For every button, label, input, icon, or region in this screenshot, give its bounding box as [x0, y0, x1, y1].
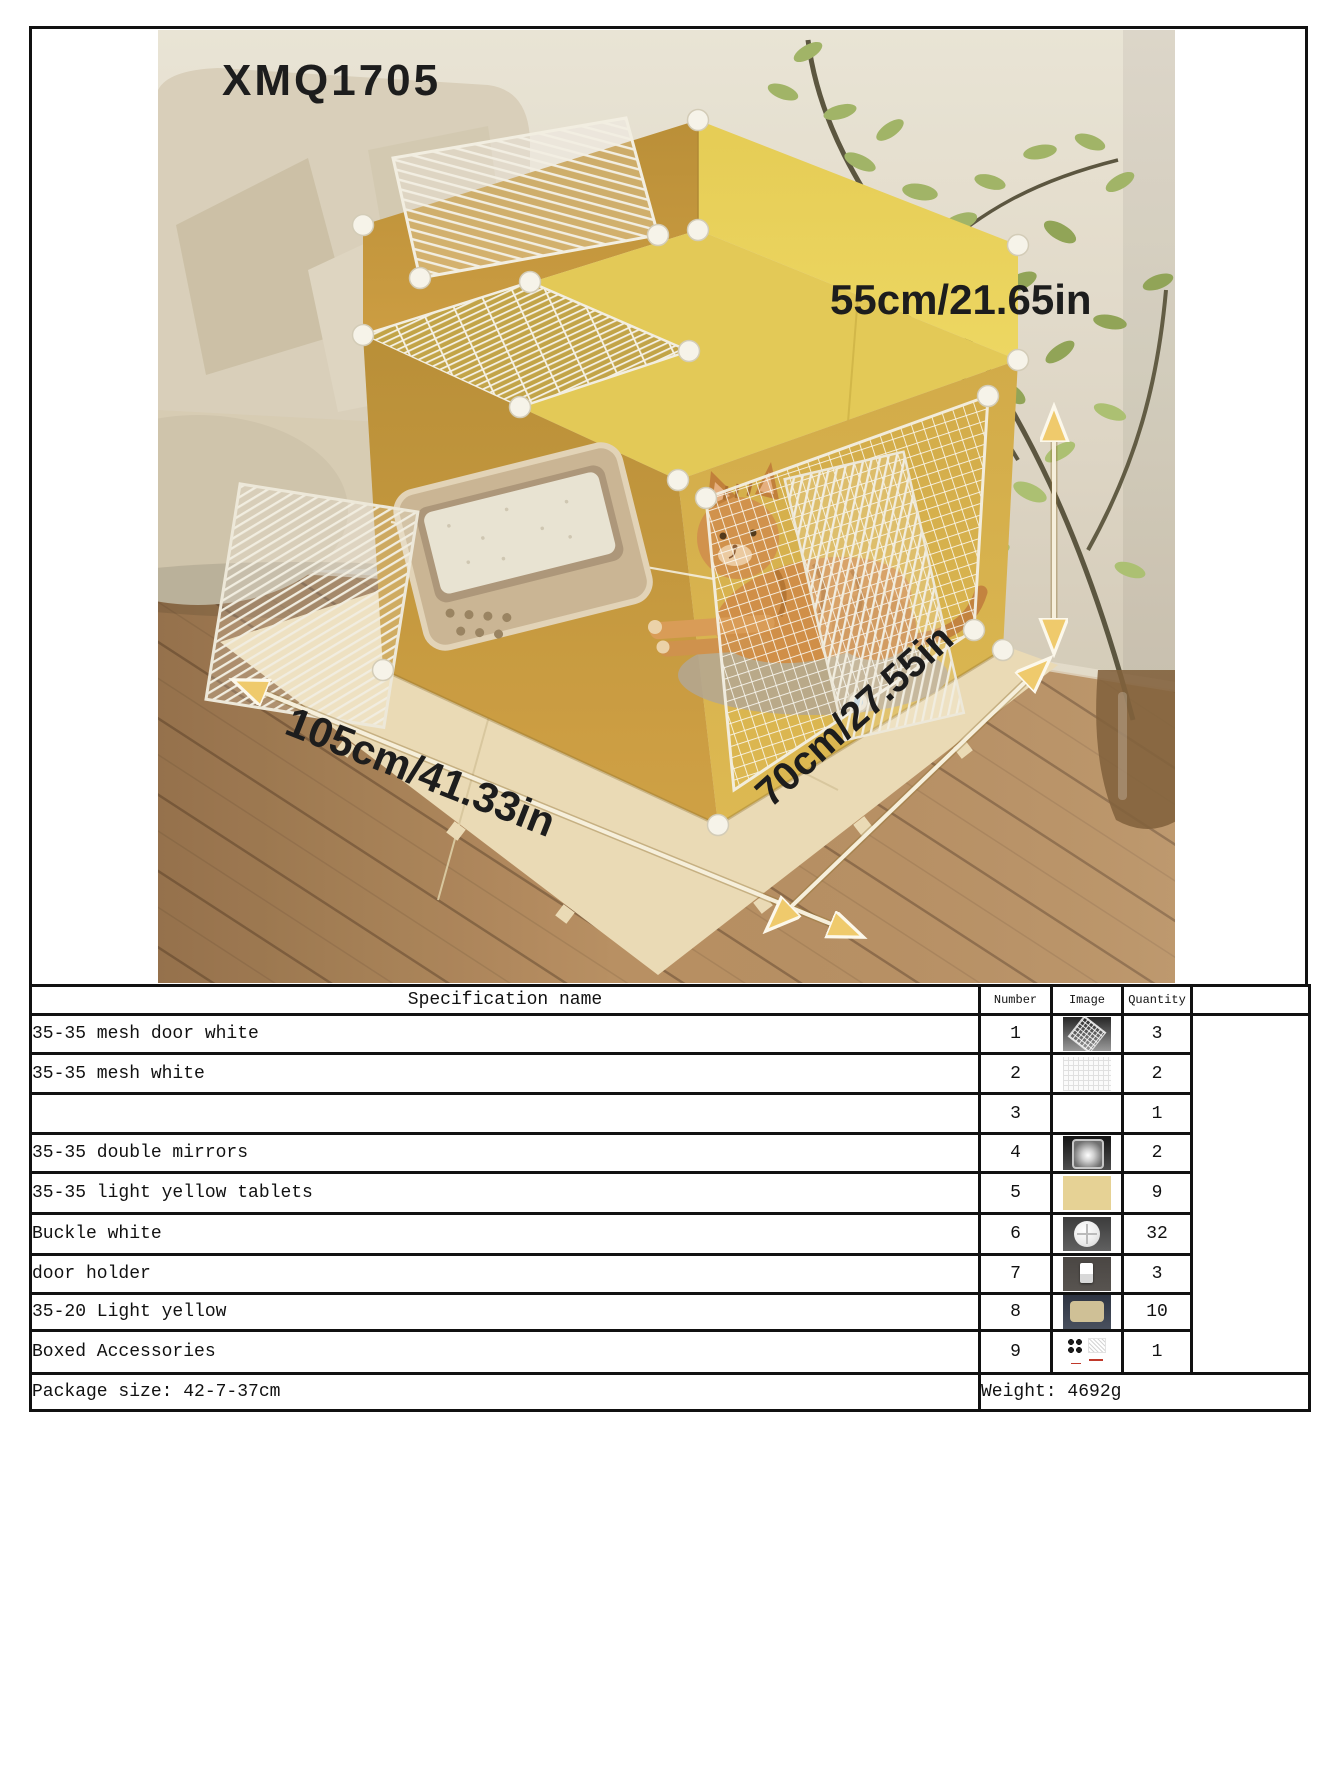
spec-name-cell: 35-20 Light yellow [31, 1294, 980, 1331]
image-cell [1052, 1134, 1123, 1173]
quantity-cell: 2 [1123, 1134, 1192, 1173]
image-cell [1052, 1294, 1123, 1331]
spec-name-cell [31, 1094, 980, 1134]
package-size-cell: Package size: 42-7-37cm [31, 1374, 980, 1411]
quantity-cell: 10 [1123, 1294, 1192, 1331]
boxed-accessories-thumbnail [1063, 1335, 1111, 1369]
number-cell: 3 [980, 1094, 1052, 1134]
table-footer-row: Package size: 42-7-37cm Weight: 4692g [31, 1374, 1310, 1411]
quantity-cell: 3 [1123, 1015, 1192, 1054]
photo-frame: XMQ1705 55cm/21.65in 105cm/41.33in 70cm/… [29, 26, 1308, 987]
quantity-cell: 9 [1123, 1173, 1192, 1214]
spec-name-cell: 35-35 double mirrors [31, 1134, 980, 1173]
table-row: door holder 7 3 [31, 1255, 1310, 1294]
weight-cell: Weight: 4692g [980, 1374, 1310, 1411]
quantity-cell: 2 [1123, 1054, 1192, 1094]
table-row: 35-35 double mirrors 4 2 [31, 1134, 1310, 1173]
quantity-cell: 1 [1123, 1331, 1192, 1374]
number-cell: 1 [980, 1015, 1052, 1054]
mesh-door-thumbnail [1063, 1017, 1111, 1051]
image-cell [1052, 1255, 1123, 1294]
image-cell [1052, 1054, 1123, 1094]
product-photo: XMQ1705 55cm/21.65in 105cm/41.33in 70cm/… [158, 30, 1175, 983]
specification-table: Specification name Number Image Quantity… [29, 984, 1311, 1412]
number-cell: 9 [980, 1331, 1052, 1374]
header-quantity: Quantity [1123, 986, 1192, 1015]
table-header-row: Specification name Number Image Quantity [31, 986, 1310, 1015]
image-cell [1052, 1015, 1123, 1054]
number-cell: 7 [980, 1255, 1052, 1294]
table-row: 35-35 mesh door white 1 3 [31, 1015, 1310, 1054]
spec-name-cell: 35-35 mesh door white [31, 1015, 980, 1054]
cat-cage-scene-illustration [158, 30, 1175, 983]
height-dimension-label: 55cm/21.65in [830, 278, 1092, 322]
spec-name-cell: 35-35 light yellow tablets [31, 1173, 980, 1214]
quantity-cell: 3 [1123, 1255, 1192, 1294]
number-cell: 6 [980, 1214, 1052, 1255]
table-row: Boxed Accessories 9 1 [31, 1331, 1310, 1374]
header-empty-column [1192, 986, 1310, 1015]
door-holder-thumbnail [1063, 1257, 1111, 1291]
quantity-cell: 32 [1123, 1214, 1192, 1255]
image-cell [1052, 1214, 1123, 1255]
header-number: Number [980, 986, 1052, 1015]
product-spec-page: XMQ1705 55cm/21.65in 105cm/41.33in 70cm/… [0, 0, 1340, 1785]
round-buckle-thumbnail [1063, 1217, 1111, 1251]
number-cell: 8 [980, 1294, 1052, 1331]
yellow-panel-thumbnail [1063, 1176, 1111, 1210]
table-row: 35-20 Light yellow 8 10 [31, 1294, 1310, 1331]
spec-name-cell: 35-35 mesh white [31, 1054, 980, 1094]
mesh-panel-thumbnail [1063, 1057, 1111, 1091]
number-cell: 2 [980, 1054, 1052, 1094]
spec-name-cell: Buckle white [31, 1214, 980, 1255]
small-yellow-panel-thumbnail [1063, 1295, 1111, 1329]
number-cell: 5 [980, 1173, 1052, 1214]
spec-name-cell: door holder [31, 1255, 980, 1294]
number-cell: 4 [980, 1134, 1052, 1173]
spec-name-cell: Boxed Accessories [31, 1331, 980, 1374]
image-cell [1052, 1331, 1123, 1374]
image-cell [1052, 1094, 1123, 1134]
header-image: Image [1052, 986, 1123, 1015]
table-row: Buckle white 6 32 [31, 1214, 1310, 1255]
header-specification-name: Specification name [31, 986, 980, 1015]
acrylic-panel-thumbnail [1063, 1136, 1111, 1170]
table-row: 3 1 [31, 1094, 1310, 1134]
image-cell [1052, 1173, 1123, 1214]
table-row: 35-35 mesh white 2 2 [31, 1054, 1310, 1094]
table-row: 35-35 light yellow tablets 5 9 [31, 1173, 1310, 1214]
model-number-label: XMQ1705 [222, 58, 441, 104]
quantity-cell: 1 [1123, 1094, 1192, 1134]
empty-merged-column [1192, 1015, 1310, 1374]
